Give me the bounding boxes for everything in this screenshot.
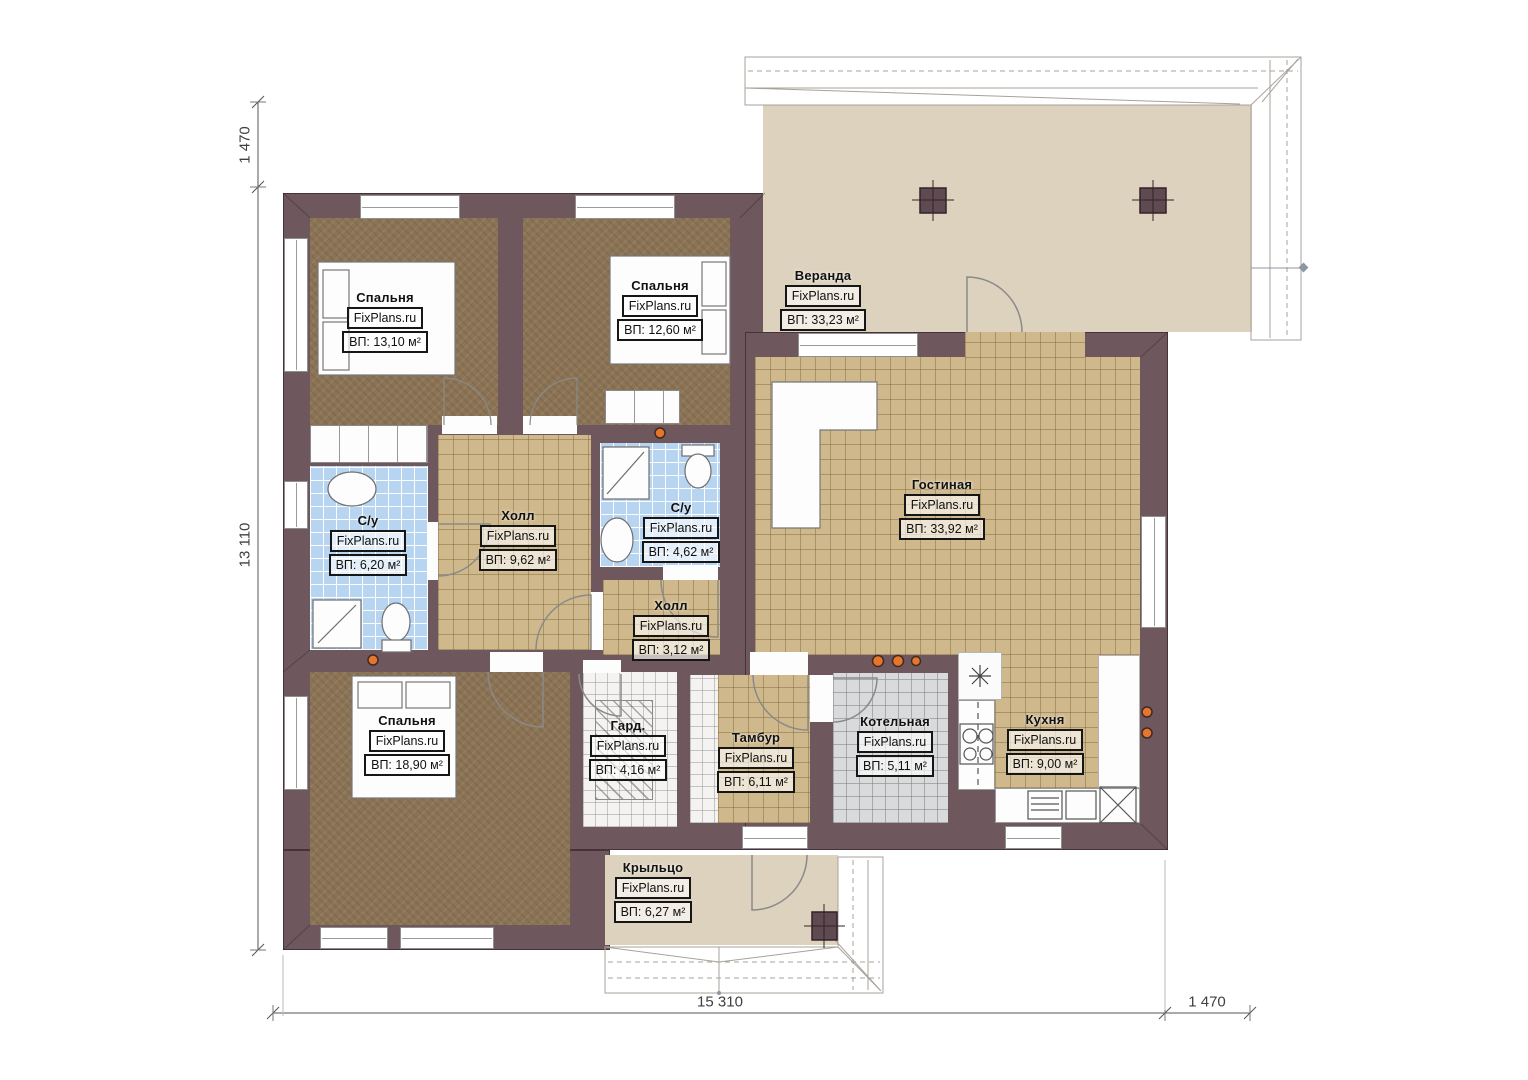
watermark: FixPlans.ru [785, 285, 862, 307]
watermark: FixPlans.ru [1007, 729, 1084, 751]
bath1-door-gap [428, 522, 438, 580]
entrance-door-threshold [742, 826, 808, 849]
boiler-door-gap [810, 675, 833, 722]
watermark: FixPlans.ru [369, 730, 446, 752]
label-vestibule: Тамбур FixPlans.ru ВП: 6,11 м² [712, 730, 800, 793]
room-name: Спальня [356, 290, 414, 305]
watermark: FixPlans.ru [904, 494, 981, 516]
watermark: FixPlans.ru [590, 735, 667, 757]
label-bedroom3: Спальня FixPlans.ru ВП: 18,90 м² [350, 713, 464, 776]
bedroom2-closet [605, 390, 680, 424]
bedroom1-door-gap [442, 416, 497, 434]
room-name: Гард. [611, 718, 646, 733]
room-area: ВП: 12,60 м² [617, 319, 703, 341]
bedroom3-floor [310, 672, 570, 925]
dim-bottom-offset: 1 470 [1188, 994, 1226, 1011]
dim-left-offset: 1 470 [237, 126, 254, 164]
room-name: Крыльцо [623, 860, 684, 875]
bedroom1-window-left [284, 238, 308, 372]
watermark: FixPlans.ru [643, 517, 720, 539]
label-hall2: Холл FixPlans.ru ВП: 3,12 м² [628, 598, 714, 661]
bedroom1-closet [310, 425, 428, 463]
room-name: Веранда [795, 268, 852, 283]
watermark: FixPlans.ru [857, 731, 934, 753]
room-name: Спальня [378, 713, 436, 728]
room-name: Тамбур [732, 730, 780, 745]
room-area: ВП: 6,20 м² [329, 554, 408, 576]
room-area: ВП: 6,11 м² [717, 771, 795, 793]
label-bedroom1: Спальня FixPlans.ru ВП: 13,10 м² [318, 290, 452, 353]
room-name: Кухня [1026, 712, 1065, 727]
label-porch: Крыльцо FixPlans.ru ВП: 6,27 м² [606, 860, 700, 923]
room-area: ВП: 3,12 м² [632, 639, 711, 661]
watermark: FixPlans.ru [480, 525, 557, 547]
watermark: FixPlans.ru [633, 615, 710, 637]
label-wardrobe: Гард. FixPlans.ru ВП: 4,16 м² [582, 718, 674, 781]
bedroom3-door-gap [490, 652, 543, 672]
dim-left-total: 13 110 [237, 523, 254, 568]
room-name: С/у [671, 500, 692, 515]
kitchen-counter-bottom [995, 788, 1140, 823]
kitchen-counter-left [958, 700, 995, 790]
room-area: ВП: 13,10 м² [342, 331, 428, 353]
room-area: ВП: 4,62 м² [642, 541, 721, 563]
room-name: Холл [654, 598, 687, 613]
watermark: FixPlans.ru [615, 877, 692, 899]
label-living: Гостиная FixPlans.ru ВП: 33,92 м² [877, 477, 1007, 540]
room-area: ВП: 18,90 м² [364, 754, 450, 776]
room-area: ВП: 9,00 м² [1006, 753, 1085, 775]
room-name: Спальня [631, 278, 689, 293]
room-area: ВП: 5,11 м² [856, 755, 934, 777]
room-area: ВП: 9,62 м² [479, 549, 558, 571]
living-veranda-opening [965, 332, 1085, 358]
dim-bottom-total: 15 310 [697, 994, 743, 1011]
bedroom3-window-bottom-1 [320, 927, 388, 949]
label-veranda: Веранда FixPlans.ru ВП: 33,23 м² [768, 268, 878, 331]
bath1-window-left [284, 481, 308, 529]
floor-plan: Спальня FixPlans.ru ВП: 13,10 м² Спальня… [0, 0, 1528, 1080]
hall1-hall2-door-gap [591, 592, 603, 650]
room-name: Котельная [860, 714, 930, 729]
label-bath2: С/у FixPlans.ru ВП: 4,62 м² [638, 500, 724, 563]
living-window-top [798, 333, 918, 357]
room-area: ВП: 6,27 м² [614, 901, 693, 923]
label-bedroom2: Спальня FixPlans.ru ВП: 12,60 м² [593, 278, 727, 341]
kitchen-chimney-box [958, 652, 1002, 700]
label-kitchen: Кухня FixPlans.ru ВП: 9,00 м² [1001, 712, 1089, 775]
watermark: FixPlans.ru [347, 307, 424, 329]
bath2-door-gap [663, 565, 718, 580]
room-name: С/у [358, 513, 379, 528]
living-window-right [1141, 516, 1166, 628]
watermark: FixPlans.ru [718, 747, 795, 769]
vestibule-door-gap [750, 652, 808, 675]
room-area: ВП: 33,92 м² [899, 518, 985, 540]
label-bath1: С/у FixPlans.ru ВП: 6,20 м² [320, 513, 416, 576]
bedroom3-window-bottom-2 [400, 927, 494, 949]
bedroom1-window-top [360, 195, 460, 219]
bedroom2-window-top [575, 195, 675, 219]
room-name: Гостиная [912, 477, 972, 492]
label-boiler: Котельная FixPlans.ru ВП: 5,11 м² [845, 714, 945, 777]
label-hall1: Холл FixPlans.ru ВП: 9,62 м² [468, 508, 568, 571]
room-area: ВП: 33,23 м² [780, 309, 866, 331]
bedroom3-window-left [284, 696, 308, 790]
wardrobe-door-gap [583, 660, 621, 673]
room-name: Холл [501, 508, 534, 523]
kitchen-window-bottom [1005, 826, 1062, 849]
watermark: FixPlans.ru [622, 295, 699, 317]
watermark: FixPlans.ru [330, 530, 407, 552]
bedroom2-door-gap [523, 416, 577, 434]
kitchen-counter-right [1098, 655, 1140, 788]
room-area: ВП: 4,16 м² [589, 759, 668, 781]
